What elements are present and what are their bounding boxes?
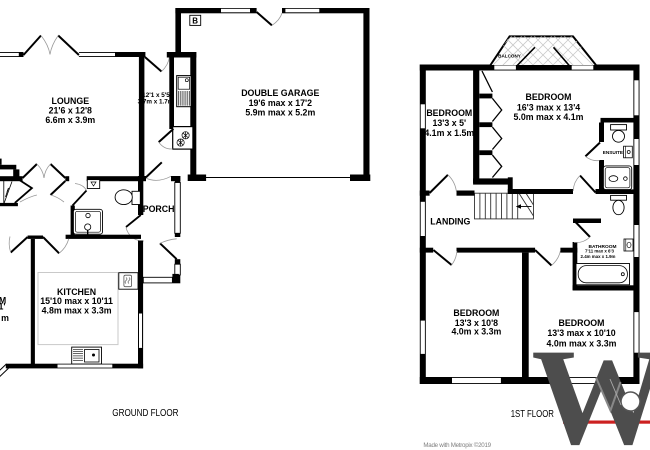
svg-text:ENSUITE: ENSUITE [603,150,623,155]
svg-text:5.0m max x 4.1m: 5.0m max x 4.1m [514,112,584,122]
svg-text:GROUND FLOOR: GROUND FLOOR [112,408,178,419]
svg-text:2.4m max x 1.9m: 2.4m max x 1.9m [581,254,616,259]
svg-text:B: B [192,17,198,26]
svg-text:4.1m x 1.5m: 4.1m x 1.5m [424,128,474,138]
svg-text:LANDING: LANDING [430,216,470,226]
svg-text:4.0m x 3.3m: 4.0m x 3.3m [451,327,501,337]
svg-text:PORCH: PORCH [143,204,175,214]
svg-text:BALCONY: BALCONY [498,54,521,59]
svg-text:4.8m max x 3.3m: 4.8m max x 3.3m [42,306,112,316]
svg-text:Made with Metropix ©2019: Made with Metropix ©2019 [423,442,491,449]
svg-text:BEDROOM: BEDROOM [526,92,572,102]
svg-text:6.6m x 3.9m: 6.6m x 3.9m [45,115,95,125]
svg-text:DOUBLE GARAGE: DOUBLE GARAGE [241,88,319,98]
svg-text:16'3 max x 13'4: 16'3 max x 13'4 [517,102,580,112]
svg-text:1': 1' [0,302,5,312]
svg-text:W: W [531,320,650,450]
svg-text:7'11 max x 6'3: 7'11 max x 6'3 [585,248,615,253]
svg-text:3.7m x 1.7m: 3.7m x 1.7m [138,99,174,106]
svg-text:BEDROOM: BEDROOM [426,108,472,118]
svg-text:m: m [1,313,9,323]
svg-text:13'3 x 5': 13'3 x 5' [433,118,467,128]
svg-text:BEDROOM: BEDROOM [453,308,499,318]
svg-text:5.9m max x 5.2m: 5.9m max x 5.2m [245,108,315,118]
svg-text:19'6 max x 17'2: 19'6 max x 17'2 [249,98,312,108]
